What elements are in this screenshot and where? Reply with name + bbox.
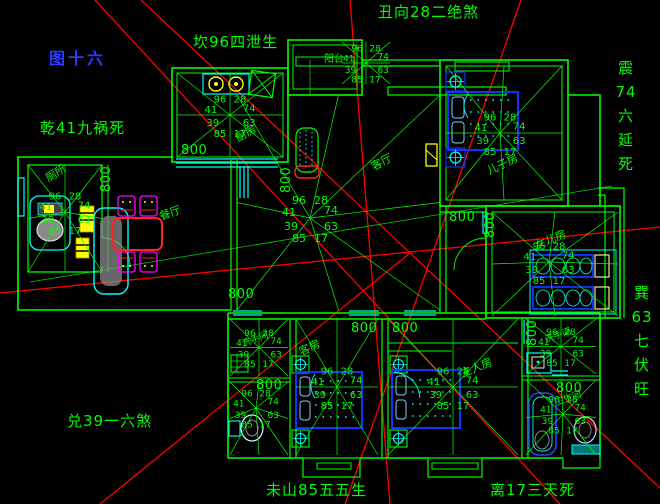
star-number-entry: 85 [351, 76, 362, 86]
chair [140, 196, 157, 216]
porch-left-step [317, 463, 351, 469]
compass-label-qian: 乾41九祸死 [40, 116, 125, 140]
star-sector-line [388, 387, 453, 455]
star-number-toilet: 39 [41, 215, 54, 226]
star-number-guest: 17 [341, 401, 354, 412]
star-number-bath-l-bot: 74 [267, 398, 279, 408]
star-number-kitchen: 85 [214, 129, 227, 140]
star-number-daughter: 85 [533, 276, 546, 287]
dim-label: 800 [483, 212, 498, 238]
star-number-kitchen: 41 [205, 105, 218, 116]
star-number-daughter: 17 [553, 276, 566, 287]
star-number-son: 74 [513, 121, 526, 132]
star-number-bath-r-top: 63 [572, 349, 583, 359]
compass-label-chou: 丑向28二绝煞 [378, 0, 479, 24]
plant-icon [295, 128, 319, 178]
dim-label: 800 [351, 321, 377, 336]
star-number-entry: 17 [369, 76, 380, 86]
star-number-son: 41 [475, 123, 488, 134]
dim-label: 800 [279, 167, 294, 193]
dim-label: 800 [99, 166, 114, 192]
star-number-bath-l-bot: 96 [241, 390, 253, 400]
star-number-bath-r-top: 39 [540, 349, 552, 359]
star-number-daughter: 39 [525, 265, 538, 276]
star-number-daughter: 41 [524, 252, 537, 263]
compass-label-wei: 未山85五五生 [266, 478, 367, 502]
star-number-entry: 96 [351, 45, 363, 55]
window [18, 178, 24, 216]
star-number-bath-l-top: 74 [270, 337, 282, 347]
star-number-entry: 41 [343, 54, 354, 64]
star-number-daughter: 63 [562, 265, 575, 276]
star-number-master: 63 [466, 390, 479, 401]
star-number-master: 17 [457, 401, 470, 412]
star-number-son: 63 [513, 136, 526, 147]
nightstand-lamp-icon [292, 430, 309, 447]
star-sector-line [549, 262, 618, 316]
star-number-master: 39 [429, 390, 442, 401]
star-number-guest: 39 [313, 390, 326, 401]
star-number-guest: 96 [321, 366, 334, 377]
star-number-bath-l-top: 63 [270, 350, 281, 360]
star-number-living: 17 [314, 232, 328, 245]
star-number-bath-l-top: 39 [238, 350, 250, 360]
star-number-entry: 39 [345, 66, 357, 76]
star-number-master: 96 [437, 366, 450, 377]
wall-lamp-icon [426, 144, 437, 166]
star-sector-line [549, 262, 618, 264]
star-number-bath-l-bot: 63 [267, 411, 278, 421]
window [552, 371, 568, 375]
star-number-guest: 41 [312, 377, 325, 388]
porch-right-step [432, 463, 478, 469]
star-number-bath-r-bot: 17 [566, 427, 577, 437]
dim-label: 800 [256, 378, 282, 393]
star-number-bath-l-top: 85 [244, 360, 255, 370]
star-number-son: 96 [484, 112, 497, 123]
star-number-entry: 74 [377, 53, 389, 63]
window [176, 159, 278, 167]
stove-icon [203, 74, 249, 94]
star-number-daughter: 74 [562, 250, 575, 261]
star-number-bath-l-bot: 85 [241, 421, 252, 431]
star-number-bath-r-top: 17 [564, 359, 575, 369]
star-number-bath-l-bot: 41 [233, 399, 244, 409]
star-number-son: 39 [476, 136, 489, 147]
star-number-toilet: 96 [49, 191, 62, 202]
star-number-bath-l-top: 17 [262, 360, 273, 370]
chair [140, 252, 157, 272]
dim-label: 800 [449, 210, 475, 225]
nightstand-lamp-icon [292, 356, 309, 373]
compass-label-li: 离17三天死 [490, 478, 575, 502]
star-number-entry: 63 [377, 66, 388, 76]
kitchen-sink-icon [248, 70, 275, 97]
star-number-bath-r-bot: 41 [540, 405, 551, 415]
star-number-living: 85 [292, 232, 306, 245]
star-number-son: 85 [484, 147, 497, 158]
porch-right [428, 458, 482, 477]
daughter-door-arc [454, 238, 486, 270]
figure-title: 图十六 [49, 47, 106, 71]
star-number-toilet: 17 [69, 226, 82, 237]
star-number-bath-r-bot: 39 [542, 417, 554, 427]
star-number-toilet: 74 [78, 200, 91, 211]
dim-label: 800 [228, 287, 254, 302]
wall-se-step [563, 458, 600, 468]
dim-label: 800 [392, 321, 418, 336]
dim-label: 800 [525, 320, 540, 346]
wall-right-ext [568, 95, 600, 206]
window [240, 166, 248, 198]
compass-label-kan: 坎96四泄生 [193, 30, 278, 54]
star-number-kitchen: 74 [243, 103, 256, 114]
fengshui-floorplan-app: 9628417439638517962841743963851796284174… [0, 0, 660, 504]
star-number-bath-l-bot: 17 [259, 421, 270, 431]
star-number-kitchen: 96 [214, 94, 227, 105]
star-number-bath-r-bot: 85 [548, 427, 559, 437]
star-number-master: 85 [437, 401, 450, 412]
star-number-master: 41 [428, 377, 441, 388]
room-label-balcony: 阳台 [324, 50, 344, 65]
star-number-bath-r-top: 74 [572, 336, 584, 346]
wall-sub-right [522, 376, 600, 380]
star-number-bath-r-bot: 63 [574, 417, 585, 427]
nightstand-lamp-icon [446, 72, 465, 91]
star-number-bath-l-bot: 39 [235, 411, 247, 421]
star-number-toilet: 41 [40, 202, 53, 213]
star-sector-line [453, 387, 518, 455]
compass-label-dui: 兑39一六煞 [67, 409, 152, 433]
dim-label: 800 [181, 143, 207, 158]
star-number-guest: 74 [350, 375, 363, 386]
compass-label-zhen: 震 74 六 延 死 [612, 56, 640, 176]
star-number-living: 74 [324, 204, 338, 217]
star-sector-line [492, 262, 549, 316]
star-number-guest: 85 [321, 401, 334, 412]
compass-label-xun: 巽 63 七 伏 旺 [628, 281, 656, 401]
star-sector-line [256, 408, 259, 455]
star-number-bath-r-top: 85 [546, 359, 557, 369]
star-number-bath-r-bot: 74 [574, 404, 586, 414]
star-number-toilet: 63 [78, 215, 91, 226]
bed-master [392, 370, 460, 428]
star-number-guest: 63 [350, 390, 363, 401]
star-number-living: 41 [282, 206, 296, 219]
star-number-kitchen: 39 [206, 118, 219, 129]
star-number-toilet: 85 [49, 226, 62, 237]
star-sector-line [492, 262, 549, 264]
dining-chairs [118, 196, 157, 272]
star-sector-line [561, 414, 563, 455]
